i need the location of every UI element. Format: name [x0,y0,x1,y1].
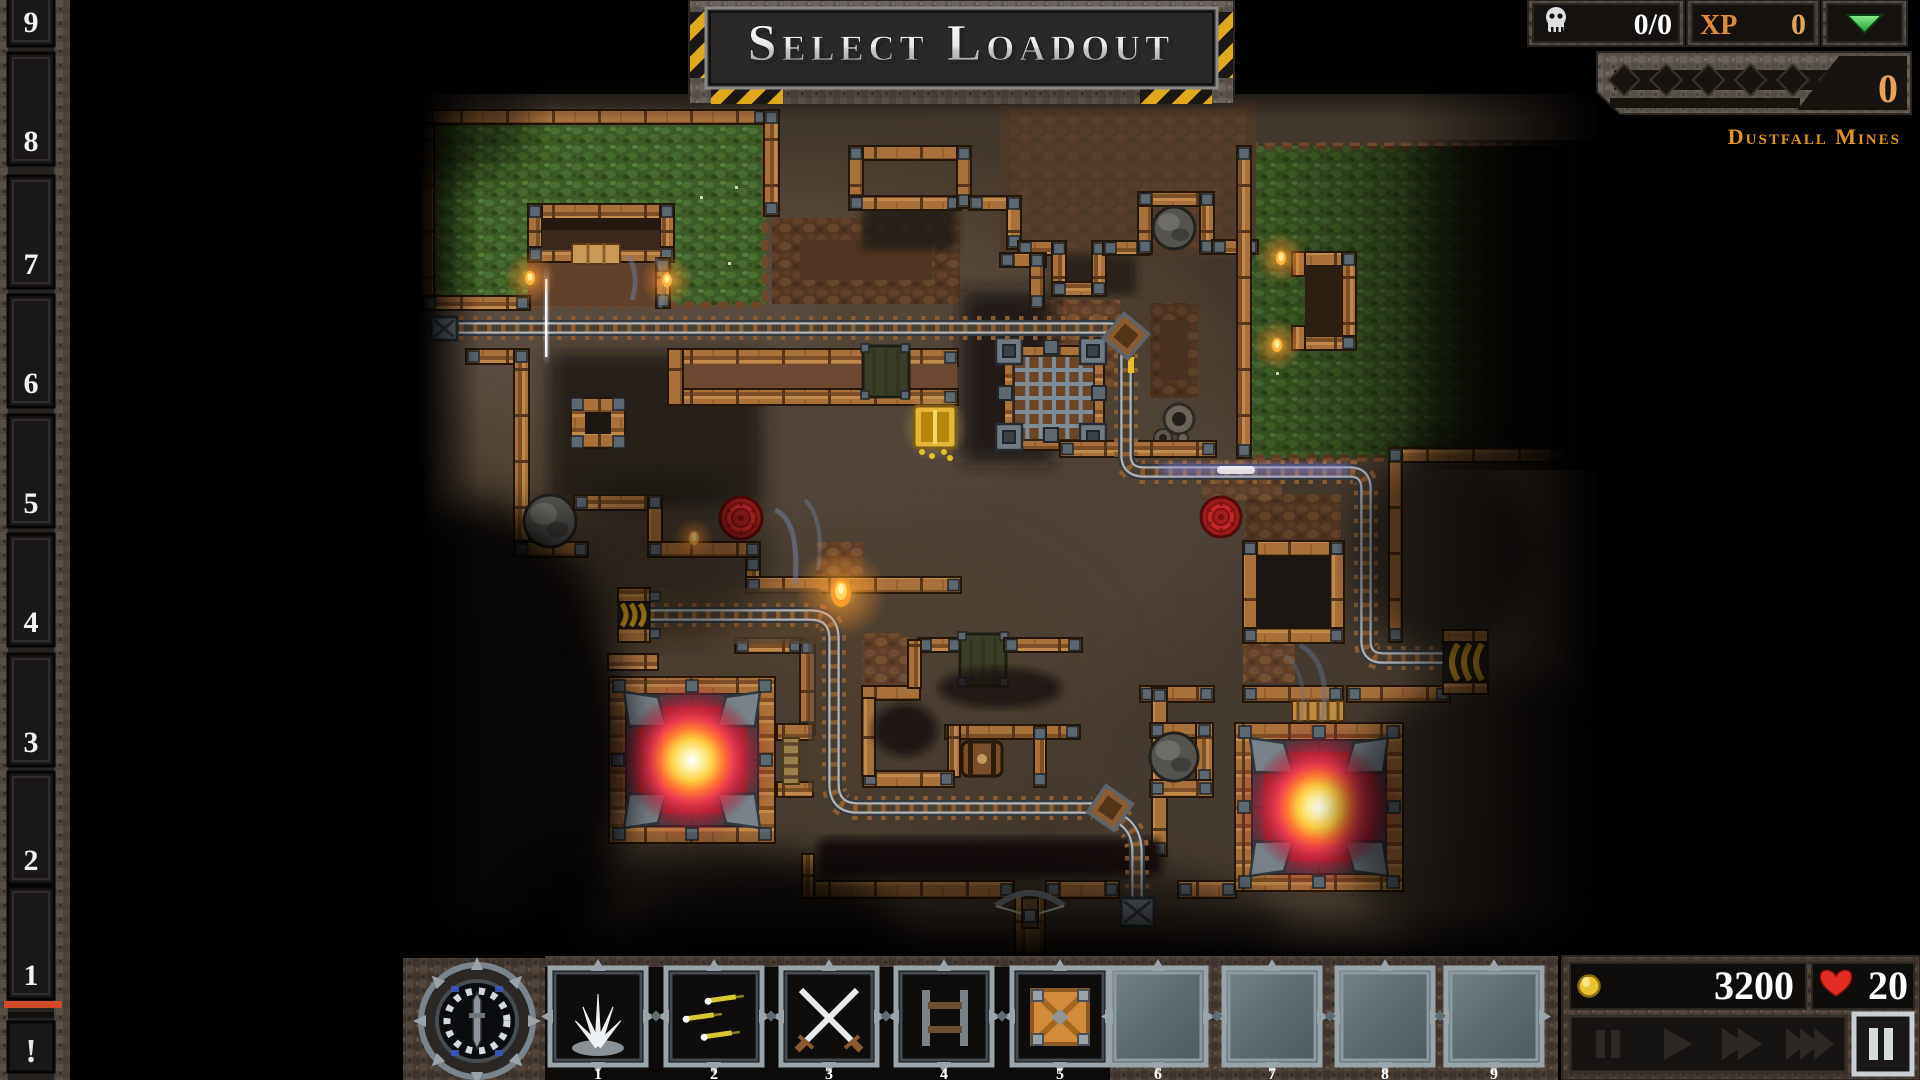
svg-text:8: 8 [1381,1066,1389,1080]
svg-text:!: ! [25,1033,36,1070]
svg-text:3: 3 [24,726,39,759]
svg-text:4: 4 [940,1066,948,1080]
svg-text:0: 0 [1878,66,1898,111]
svg-text:7: 7 [1268,1066,1276,1080]
svg-text:9: 9 [1490,1066,1498,1080]
svg-text:Dustfall Mines: Dustfall Mines [1728,124,1901,149]
svg-text:9: 9 [24,6,39,39]
svg-text:8: 8 [24,125,39,158]
svg-text:3: 3 [825,1066,833,1080]
svg-text:20: 20 [1868,963,1908,1008]
svg-text:Select Loadout: Select Loadout [748,15,1175,72]
svg-text:0/0: 0/0 [1634,8,1672,41]
svg-text:2: 2 [24,844,39,877]
svg-text:1: 1 [24,959,39,992]
svg-text:6: 6 [24,367,39,400]
svg-text:6: 6 [1154,1066,1162,1080]
svg-text:5: 5 [24,487,39,520]
svg-text:1: 1 [594,1066,602,1080]
svg-text:XP: XP [1700,10,1737,41]
svg-text:2: 2 [710,1066,718,1080]
svg-text:4: 4 [24,606,39,639]
svg-text:5: 5 [1056,1066,1064,1080]
svg-text:0: 0 [1791,8,1806,41]
svg-text:3200: 3200 [1714,963,1794,1008]
svg-text:7: 7 [24,248,39,281]
